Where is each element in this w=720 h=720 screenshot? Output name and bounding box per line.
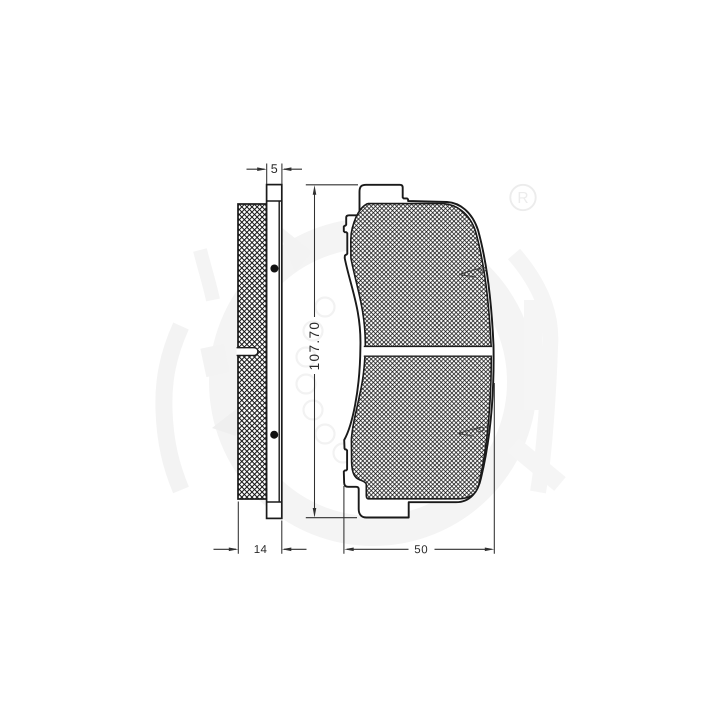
svg-text:50: 50	[414, 544, 428, 556]
svg-text:5: 5	[271, 162, 278, 176]
svg-text:107.70: 107.70	[307, 321, 322, 371]
svg-text:R: R	[517, 190, 528, 207]
svg-text:14: 14	[254, 544, 268, 556]
